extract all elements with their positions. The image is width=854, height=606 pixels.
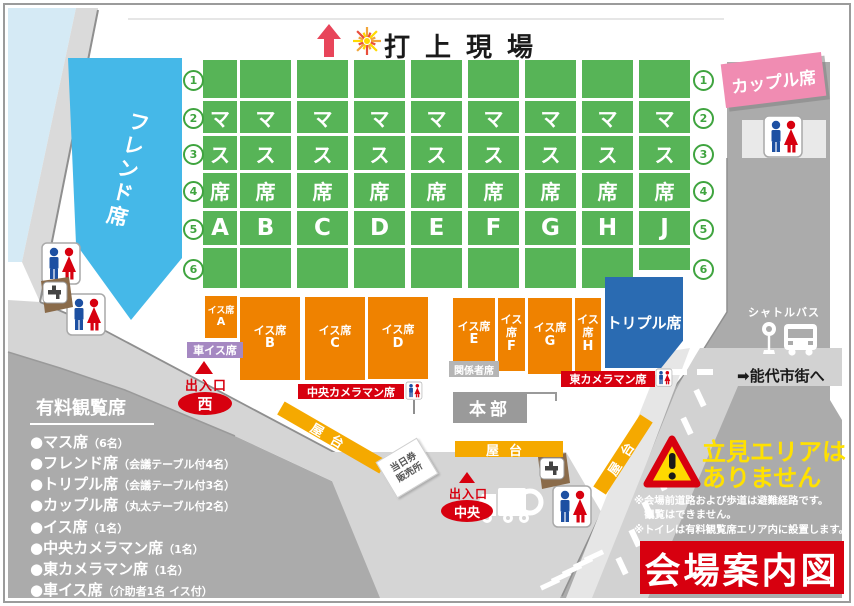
masu-cell	[411, 60, 462, 98]
masu-cell	[203, 60, 237, 98]
warning-note-line: 観覧はできません。	[634, 508, 849, 522]
warning-note-line: ※トイレは有料観覧席エリア内に設置します。	[634, 523, 849, 537]
masu-cell: ス	[639, 136, 690, 170]
masu-cell: 席	[354, 173, 405, 208]
row-number-3: 3	[183, 144, 204, 165]
row-number-2: 2	[693, 108, 714, 129]
east-camera-seat-bar: 東カメラマン席	[561, 371, 655, 387]
no-standing-warning: 立見エリアは ありません	[702, 440, 846, 492]
chair-seat-B: イス席B	[240, 297, 300, 380]
legend-title: 有料観覧席	[30, 394, 154, 425]
masu-cell: B	[240, 211, 291, 245]
row-number-6: 6	[183, 259, 204, 280]
masu-cell: ス	[297, 136, 348, 170]
masu-cell: 席	[582, 173, 633, 208]
gate-center-arrow	[459, 472, 475, 483]
masu-cell: ス	[203, 136, 237, 170]
masu-cell: A	[203, 211, 237, 245]
masu-cell: E	[411, 211, 462, 245]
row-number-5: 5	[183, 219, 204, 240]
shuttle-bus-label: シャトルバス	[748, 304, 820, 320]
wheelchair-seat-label: 車イス席	[187, 342, 243, 358]
restroom-icon	[42, 243, 80, 284]
masu-cell: 席	[468, 173, 519, 208]
restroom-icon	[764, 116, 802, 157]
chair-seat-G: イス席G	[528, 298, 572, 374]
legend-item: ●車イス席（介助者1名 イス付）	[30, 580, 235, 601]
restroom-icon	[553, 486, 591, 527]
legend-item: ●中央カメラマン席（1名）	[30, 538, 235, 559]
masu-cell	[468, 248, 519, 288]
water-station-icon	[41, 277, 73, 313]
headquarters-box: 本部	[453, 392, 527, 423]
restroom-icon	[406, 382, 422, 399]
masu-cell	[639, 248, 690, 270]
row-number-4: 4	[693, 181, 714, 202]
restroom-icon	[67, 294, 105, 335]
legend: 有料観覧席 ●マス席（6名）●フレンド席（会議テーブル付4名）●トリプル席（会議…	[30, 394, 235, 601]
legend-item: ●フレンド席（会議テーブル付4名）	[30, 453, 235, 474]
masu-cell	[411, 248, 462, 288]
masu-cell	[297, 60, 348, 98]
masu-cell	[354, 248, 405, 288]
masu-cell: 席	[203, 173, 237, 208]
launch-site-title: 打上現場	[384, 27, 548, 64]
warning-note-line: ※会場前道路および歩道は避難経路です。	[634, 494, 849, 508]
masu-cell	[468, 60, 519, 98]
masu-cell: 席	[639, 173, 690, 208]
triple-seat-area: トリプル席	[605, 277, 683, 368]
masu-cell	[582, 60, 633, 98]
masu-cell	[639, 60, 690, 98]
row-number-1: 1	[693, 70, 714, 91]
row-number-2: 2	[183, 108, 204, 129]
venue-map: 打上現場 フレンド席 マス席Aマス席Bマス席Cマス席Dマス席Eマス席Fマス席Gマ…	[0, 0, 854, 606]
masu-cell: マ	[468, 101, 519, 133]
masu-cell: マ	[411, 101, 462, 133]
masu-cell	[203, 248, 237, 288]
chair-seat-D: イス席D	[368, 297, 428, 379]
masu-cell: マ	[297, 101, 348, 133]
yatai-stall-bar: 屋台	[455, 441, 563, 457]
masu-cell: J	[639, 211, 690, 245]
chair-seat-H: イス席H	[575, 298, 601, 371]
masu-cell: マ	[354, 101, 405, 133]
masu-cell: 席	[297, 173, 348, 208]
masu-cell: ス	[468, 136, 519, 170]
warning-notes: ※会場前道路および歩道は避難経路です。 観覧はできません。※トイレは有料観覧席エ…	[634, 494, 849, 537]
center-camera-seat-bar: 中央カメラマン席	[298, 384, 404, 399]
firework-icon	[353, 27, 381, 55]
masu-cell	[240, 60, 291, 98]
masu-cell: C	[297, 211, 348, 245]
masu-cell: ス	[582, 136, 633, 170]
masu-cell	[525, 248, 576, 288]
row-number-4: 4	[183, 181, 204, 202]
masu-cell	[354, 60, 405, 98]
masu-cell: マ	[525, 101, 576, 133]
masu-cell: G	[525, 211, 576, 245]
row-number-3: 3	[693, 144, 714, 165]
masu-cell: マ	[639, 101, 690, 133]
legend-item: ●トリプル席（会議テーブル付3名）	[30, 474, 235, 495]
officials-seat-label: 関係者席	[449, 361, 499, 377]
masu-cell: H	[582, 211, 633, 245]
masu-cell: F	[468, 211, 519, 245]
masu-cell	[525, 60, 576, 98]
restroom-icon	[656, 369, 672, 386]
masu-cell: 席	[525, 173, 576, 208]
water-station-icon	[538, 453, 570, 489]
chair-seat-A: イス席A	[205, 296, 237, 338]
masu-cell	[240, 248, 291, 288]
gate-center-name: 中央	[441, 500, 493, 522]
map-title-box: 会場案内図	[640, 541, 844, 594]
chair-seat-C: イス席C	[305, 297, 365, 380]
chair-seat-F: イス席F	[498, 298, 525, 371]
to-city-label: ➡能代市街へ	[737, 365, 825, 386]
legend-item: ●東カメラマン席（1名）	[30, 559, 235, 580]
masu-cell: マ	[240, 101, 291, 133]
row-number-5: 5	[693, 219, 714, 240]
masu-cell: 席	[240, 173, 291, 208]
masu-cell: マ	[203, 101, 237, 133]
masu-cell: ス	[240, 136, 291, 170]
masu-cell	[297, 248, 348, 288]
legend-items: ●マス席（6名）●フレンド席（会議テーブル付4名）●トリプル席（会議テーブル付3…	[30, 432, 235, 601]
row-number-1: 1	[183, 70, 204, 91]
masu-cell: マ	[582, 101, 633, 133]
masu-cell: ス	[411, 136, 462, 170]
masu-cell: D	[354, 211, 405, 245]
legend-item: ●マス席（6名）	[30, 432, 235, 453]
legend-item: ●カップル席（丸太テーブル付2名）	[30, 495, 235, 516]
gate-west-arrow	[195, 361, 213, 374]
masu-cell: ス	[525, 136, 576, 170]
row-number-6: 6	[693, 259, 714, 280]
masu-cell: 席	[411, 173, 462, 208]
masu-cell: ス	[354, 136, 405, 170]
legend-item: ●イス席（1名）	[30, 517, 235, 538]
